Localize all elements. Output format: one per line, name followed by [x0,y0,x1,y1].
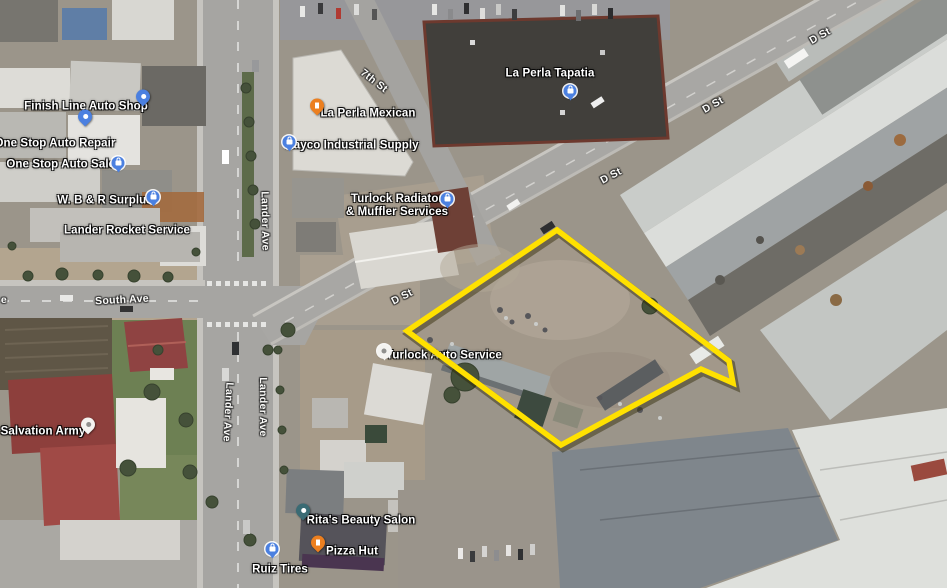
place-label[interactable]: Ruiz Tires [252,564,308,577]
map-pin[interactable] [441,192,454,205]
satellite-map[interactable]: 7th StLander AveLander AveLander AveSout… [0,0,947,588]
street-label: 7th St [358,67,390,96]
street-label: e [1,294,7,306]
place-label[interactable]: One Stop Auto Repair [0,138,116,151]
briefcase-icon [286,139,292,144]
dot-icon [382,348,387,353]
street-label: Lander Ave [220,382,235,442]
wrench-icon [83,114,88,119]
street-label: South Ave [95,293,149,308]
street-label: D St [598,165,623,186]
place-label[interactable]: Rayco Industrial Supply [285,140,418,153]
label-layer: 7th StLander AveLander AveLander AveSout… [0,0,947,588]
place-label[interactable]: Salvation Army [1,426,86,439]
place-label[interactable]: W. B & R Surplus [57,195,153,208]
street-label: Lander Ave [257,377,269,436]
place-label[interactable]: One Stop Auto Sales [6,159,121,172]
map-pin[interactable] [147,190,160,203]
place-label[interactable]: Turlock Radiator& Muffler Services [346,193,448,219]
street-label: D St [807,25,832,46]
street-label: Lander Ave [258,191,271,251]
place-label[interactable]: La Perla Mexican [321,108,416,121]
map-pin[interactable] [112,156,125,169]
restaurant-icon [314,103,320,109]
place-label[interactable]: Turlock Auto Service [386,350,502,363]
place-label[interactable]: Lander Rocket Service [64,225,190,238]
street-label: D St [700,94,725,115]
map-pin[interactable] [564,84,577,97]
bag-icon [115,160,121,165]
dot-icon [301,508,306,513]
cart-icon [567,88,573,93]
wrench-icon [141,94,146,99]
dot-icon [86,422,91,427]
bag-icon [150,194,156,199]
briefcase-icon [269,546,275,551]
restaurant-icon [315,540,321,546]
map-pin[interactable] [378,344,391,357]
map-pin[interactable] [283,135,296,148]
map-pin[interactable] [266,542,279,555]
place-label[interactable]: Rita's Beauty Salon [307,515,416,528]
briefcase-icon [444,196,450,201]
place-label[interactable]: Pizza Hut [326,546,378,559]
map-pin[interactable] [308,533,328,553]
place-label[interactable]: La Perla Tapatia [506,68,595,81]
street-label: D St [389,287,414,308]
